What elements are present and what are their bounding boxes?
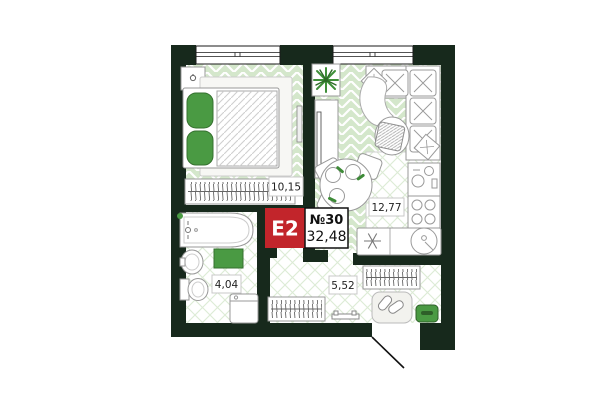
kitchen-area-label: 12,77 xyxy=(369,198,404,216)
bottom-right-wall-block xyxy=(420,323,455,350)
top-pier-left xyxy=(171,45,196,65)
washing-machine-icon xyxy=(411,228,437,254)
hallway-area-label: 5,52 xyxy=(329,276,357,294)
unit-type-label: E2 xyxy=(271,217,299,241)
unit-number: №30 xyxy=(310,213,344,228)
living-window xyxy=(333,46,413,64)
hall-wardrobe xyxy=(268,297,325,321)
bath-mat xyxy=(214,249,243,268)
armchair-cushion xyxy=(375,122,406,152)
bathroom-washer xyxy=(230,294,258,323)
tv xyxy=(317,112,321,170)
bathroom-area-label: 4,04 xyxy=(212,275,241,293)
bedroom: 10,15 xyxy=(181,67,303,204)
top-pier-middle xyxy=(280,45,333,65)
bed-pillow-top xyxy=(187,93,213,128)
coat-rack xyxy=(363,266,420,289)
lamp-dot xyxy=(192,74,194,76)
right-wall xyxy=(441,45,455,350)
pouf xyxy=(416,305,438,322)
floor-plan: 10,15 xyxy=(0,0,605,403)
wall-mirror xyxy=(297,106,302,142)
svg-text:4,04: 4,04 xyxy=(215,279,239,291)
plant-dot xyxy=(177,213,183,219)
hall-stub xyxy=(303,250,328,262)
toilet xyxy=(180,279,208,301)
bedroom-window xyxy=(196,46,280,64)
unit-number-badge[interactable]: №30 32,48 xyxy=(305,208,348,248)
entry-rug xyxy=(372,292,412,323)
svg-text:5,52: 5,52 xyxy=(331,280,354,292)
dining-table xyxy=(320,159,372,211)
bottom-wall xyxy=(171,323,372,337)
bathtub xyxy=(180,213,253,247)
svg-text:12,77: 12,77 xyxy=(371,202,401,214)
mattress-hatch xyxy=(217,91,277,166)
plant-icon xyxy=(314,68,338,92)
entry-door-swing xyxy=(372,337,404,368)
bed-pillow-bottom xyxy=(187,131,213,165)
bedroom-area-label: 10,15 xyxy=(269,177,303,196)
stove xyxy=(408,196,440,228)
hall-doorway-floor xyxy=(328,248,356,262)
unit-type-badge[interactable]: E2 xyxy=(265,208,305,248)
unit-total-area: 32,48 xyxy=(306,229,346,245)
bathroom-door-stub xyxy=(270,247,277,258)
svg-text:10,15: 10,15 xyxy=(271,182,301,194)
